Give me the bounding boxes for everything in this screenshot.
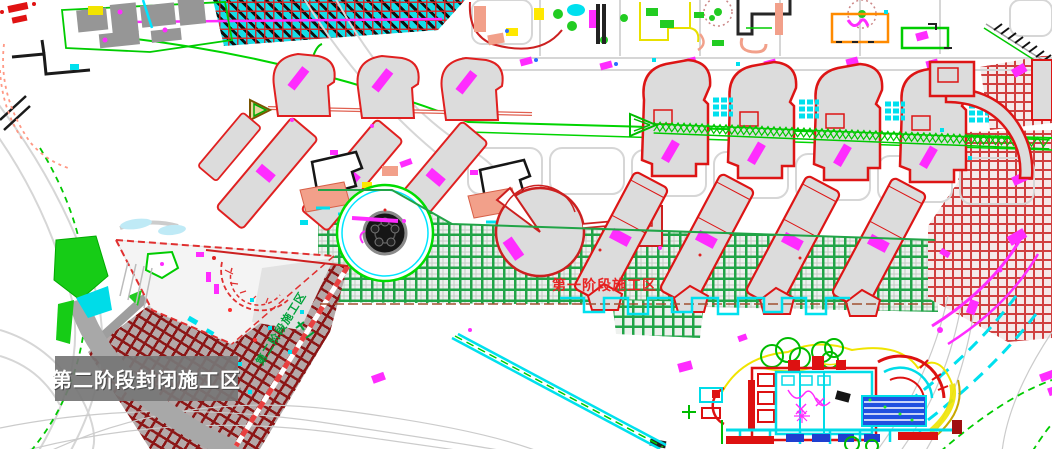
- tower-hat-buildings: [642, 60, 968, 182]
- fan-top-building: [274, 54, 503, 120]
- top-right-buildings: [709, 0, 952, 52]
- tower-slab-buildings: [573, 171, 927, 316]
- phase2-zone-overlay-text: 第二阶段封闭施工区: [52, 364, 241, 393]
- phase2-zone-overlay-label: 第二阶段封闭施工区: [55, 356, 238, 401]
- plaza-arcs-right: [908, 228, 1052, 420]
- phase1-zone-label: 第一阶段施工区: [552, 277, 657, 293]
- top-left-building-cluster: [0, 0, 232, 168]
- cyan-road: [452, 334, 666, 449]
- central-roundabout: [337, 185, 433, 281]
- bottom-right-complex-building: [682, 338, 962, 449]
- site-plan-canvas: 第二阶段施工区 第一阶段施工区: [0, 0, 1052, 449]
- tree-symbols: [761, 338, 843, 368]
